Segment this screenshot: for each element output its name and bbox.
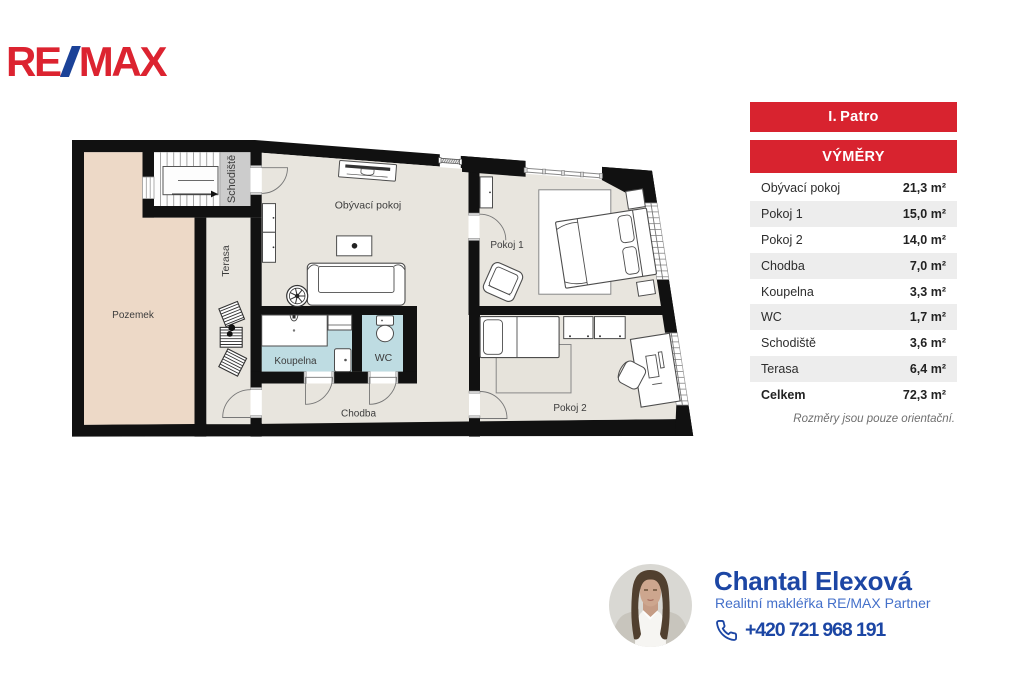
svg-text:Pozemek: Pozemek [112, 310, 155, 321]
svg-text:Pokoj 1: Pokoj 1 [490, 240, 524, 251]
svg-text:Obývací pokoj: Obývací pokoj [335, 200, 402, 212]
svg-text:Koupelna: Koupelna [274, 356, 317, 367]
svg-text:Schodiště: Schodiště [226, 155, 238, 203]
svg-text:Chodba: Chodba [341, 409, 376, 420]
svg-text:Terasa: Terasa [220, 245, 232, 277]
svg-text:Pokoj 2: Pokoj 2 [553, 403, 587, 414]
svg-text:WC: WC [375, 352, 393, 364]
